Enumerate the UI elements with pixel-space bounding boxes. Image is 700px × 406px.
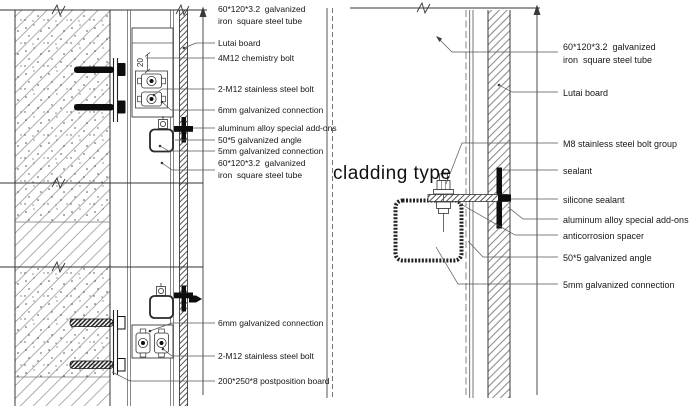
left-boundary-line — [200, 7, 207, 396]
through-board-bolt — [182, 286, 187, 312]
stainless-bolt-symbol — [138, 74, 166, 88]
technical-drawing: 60*120*3.2 galvanizediron square steel t… — [0, 0, 700, 406]
right-boundary-line — [534, 5, 541, 396]
aluminum-tube-section — [396, 201, 462, 261]
stainless-bolt-symbol — [155, 329, 169, 357]
right-detail — [327, 3, 558, 398]
drawing-linework — [0, 0, 700, 406]
left-detail — [0, 5, 215, 406]
aluminum-add-on-profile — [150, 296, 173, 318]
chemistry-anchor-bolt — [74, 67, 114, 74]
threaded-anchor-bolt — [70, 319, 113, 327]
aluminum-add-on-profile — [150, 130, 173, 152]
lower-aluminum-bracket — [150, 283, 202, 318]
galvanized-angle-plate — [428, 195, 508, 202]
stainless-bolt-symbol — [136, 329, 150, 357]
chemistry-anchor-bolt — [74, 104, 114, 111]
stainless-bolt-symbol — [138, 92, 166, 106]
bolt-nut — [498, 195, 511, 202]
drawing-title: cladding type — [333, 163, 451, 185]
bolt-glyph — [189, 296, 202, 303]
right-top-line — [350, 3, 540, 13]
lutai-board-strip — [180, 10, 188, 406]
threaded-anchor-bolt — [70, 361, 113, 369]
dimension-20: 20 — [136, 58, 145, 67]
